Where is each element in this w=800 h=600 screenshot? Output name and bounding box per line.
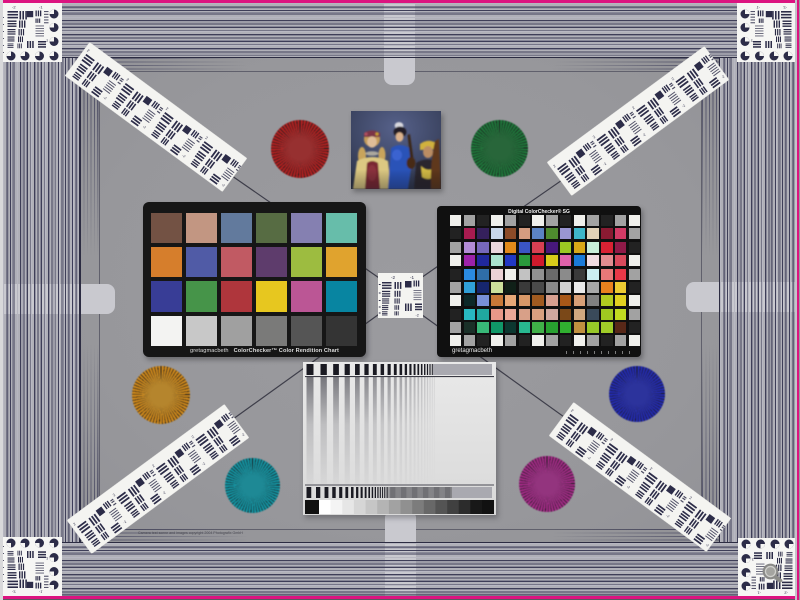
svg-text:-2: -2	[416, 314, 419, 318]
svg-text:Camera test scene and images c: Camera test scene and images copyright 2…	[138, 531, 243, 535]
svg-text:-2: -2	[391, 275, 396, 280]
svg-text:-1: -1	[410, 275, 415, 280]
